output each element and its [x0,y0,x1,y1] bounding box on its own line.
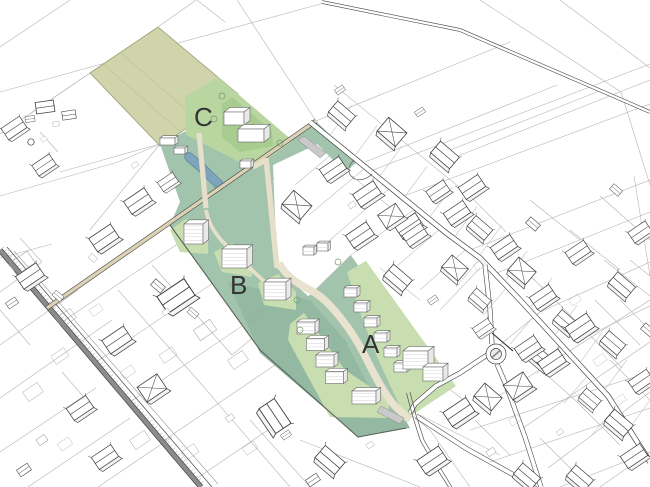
svg-text:C: C [194,102,213,132]
svg-text:A: A [362,329,380,359]
svg-text:B: B [230,270,247,300]
